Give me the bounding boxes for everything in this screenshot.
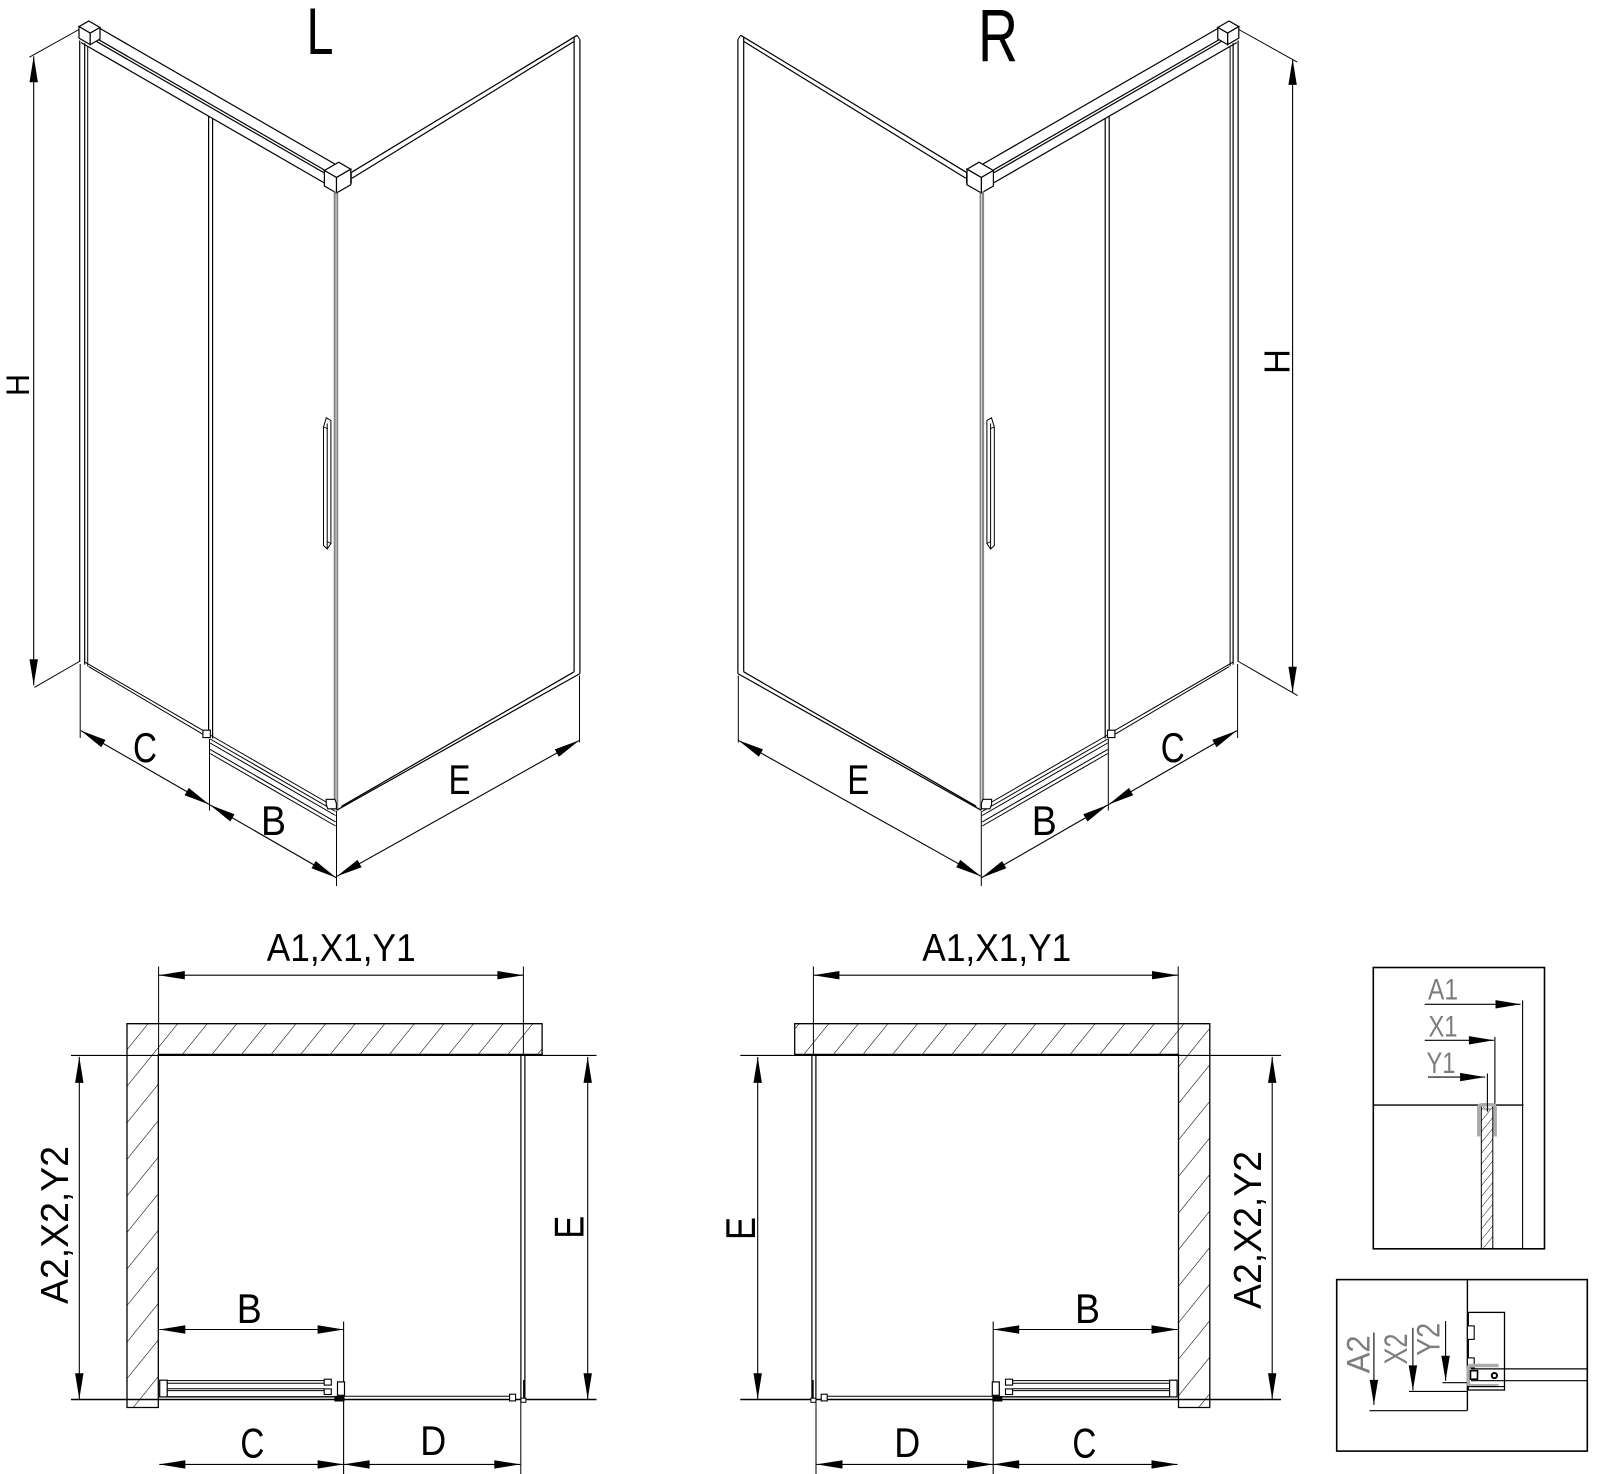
- svg-text:A1: A1: [1428, 973, 1458, 1006]
- svg-text:Y2: Y2: [1410, 1323, 1446, 1356]
- svg-text:A2: A2: [1341, 1335, 1377, 1373]
- svg-text:B: B: [237, 1285, 262, 1332]
- svg-text:E: E: [847, 756, 869, 803]
- svg-text:B: B: [1075, 1285, 1100, 1332]
- svg-text:H: H: [0, 374, 36, 396]
- svg-text:B: B: [1032, 797, 1057, 844]
- svg-text:A2,X2,Y2: A2,X2,Y2: [34, 1146, 77, 1304]
- svg-text:A1,X1,Y1: A1,X1,Y1: [267, 927, 416, 970]
- svg-text:R: R: [978, 0, 1018, 77]
- svg-text:X1: X1: [1429, 1011, 1458, 1044]
- svg-text:C: C: [1161, 724, 1185, 771]
- svg-text:Y1: Y1: [1427, 1047, 1456, 1080]
- svg-text:A2,X2,Y2: A2,X2,Y2: [1227, 1151, 1270, 1309]
- svg-text:A1,X1,Y1: A1,X1,Y1: [922, 927, 1071, 970]
- svg-text:X2: X2: [1378, 1334, 1414, 1365]
- svg-text:C: C: [133, 724, 157, 771]
- svg-text:C: C: [1072, 1419, 1096, 1466]
- svg-text:D: D: [420, 1417, 446, 1464]
- svg-text:E: E: [545, 1216, 592, 1239]
- svg-text:H: H: [1257, 349, 1298, 374]
- svg-text:L: L: [307, 0, 334, 68]
- svg-text:E: E: [717, 1217, 764, 1240]
- svg-text:D: D: [894, 1419, 920, 1466]
- svg-text:E: E: [449, 756, 471, 803]
- svg-text:B: B: [261, 797, 286, 844]
- svg-text:C: C: [240, 1419, 264, 1466]
